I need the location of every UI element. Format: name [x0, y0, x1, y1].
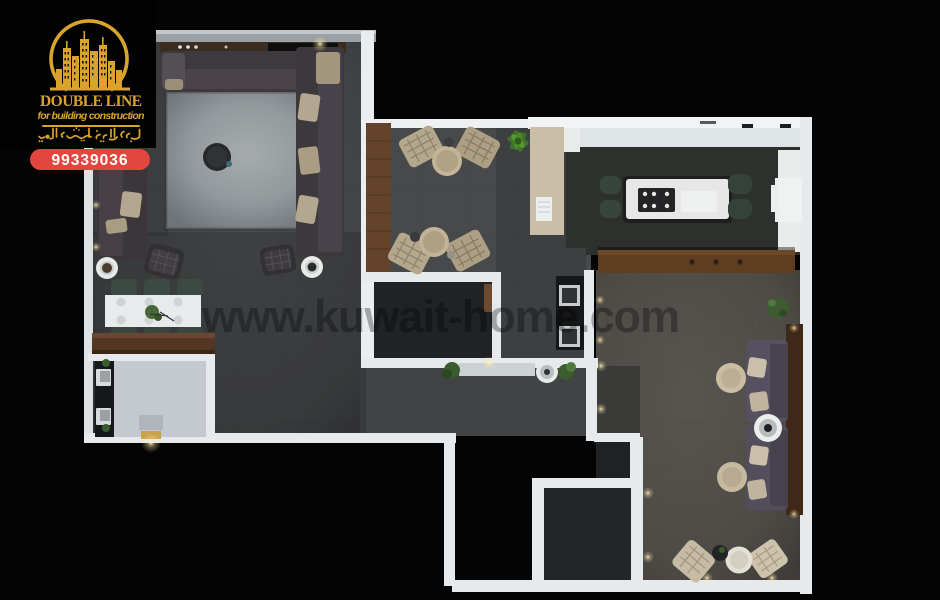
- svg-text:99339036: 99339036: [52, 152, 129, 169]
- svg-text:DOUBLE LINE: DOUBLE LINE: [40, 93, 144, 110]
- svg-text:www.kuwait-home.com: www.kuwait-home.com: [201, 291, 680, 342]
- svg-text:for building construction: for building construction: [38, 110, 145, 122]
